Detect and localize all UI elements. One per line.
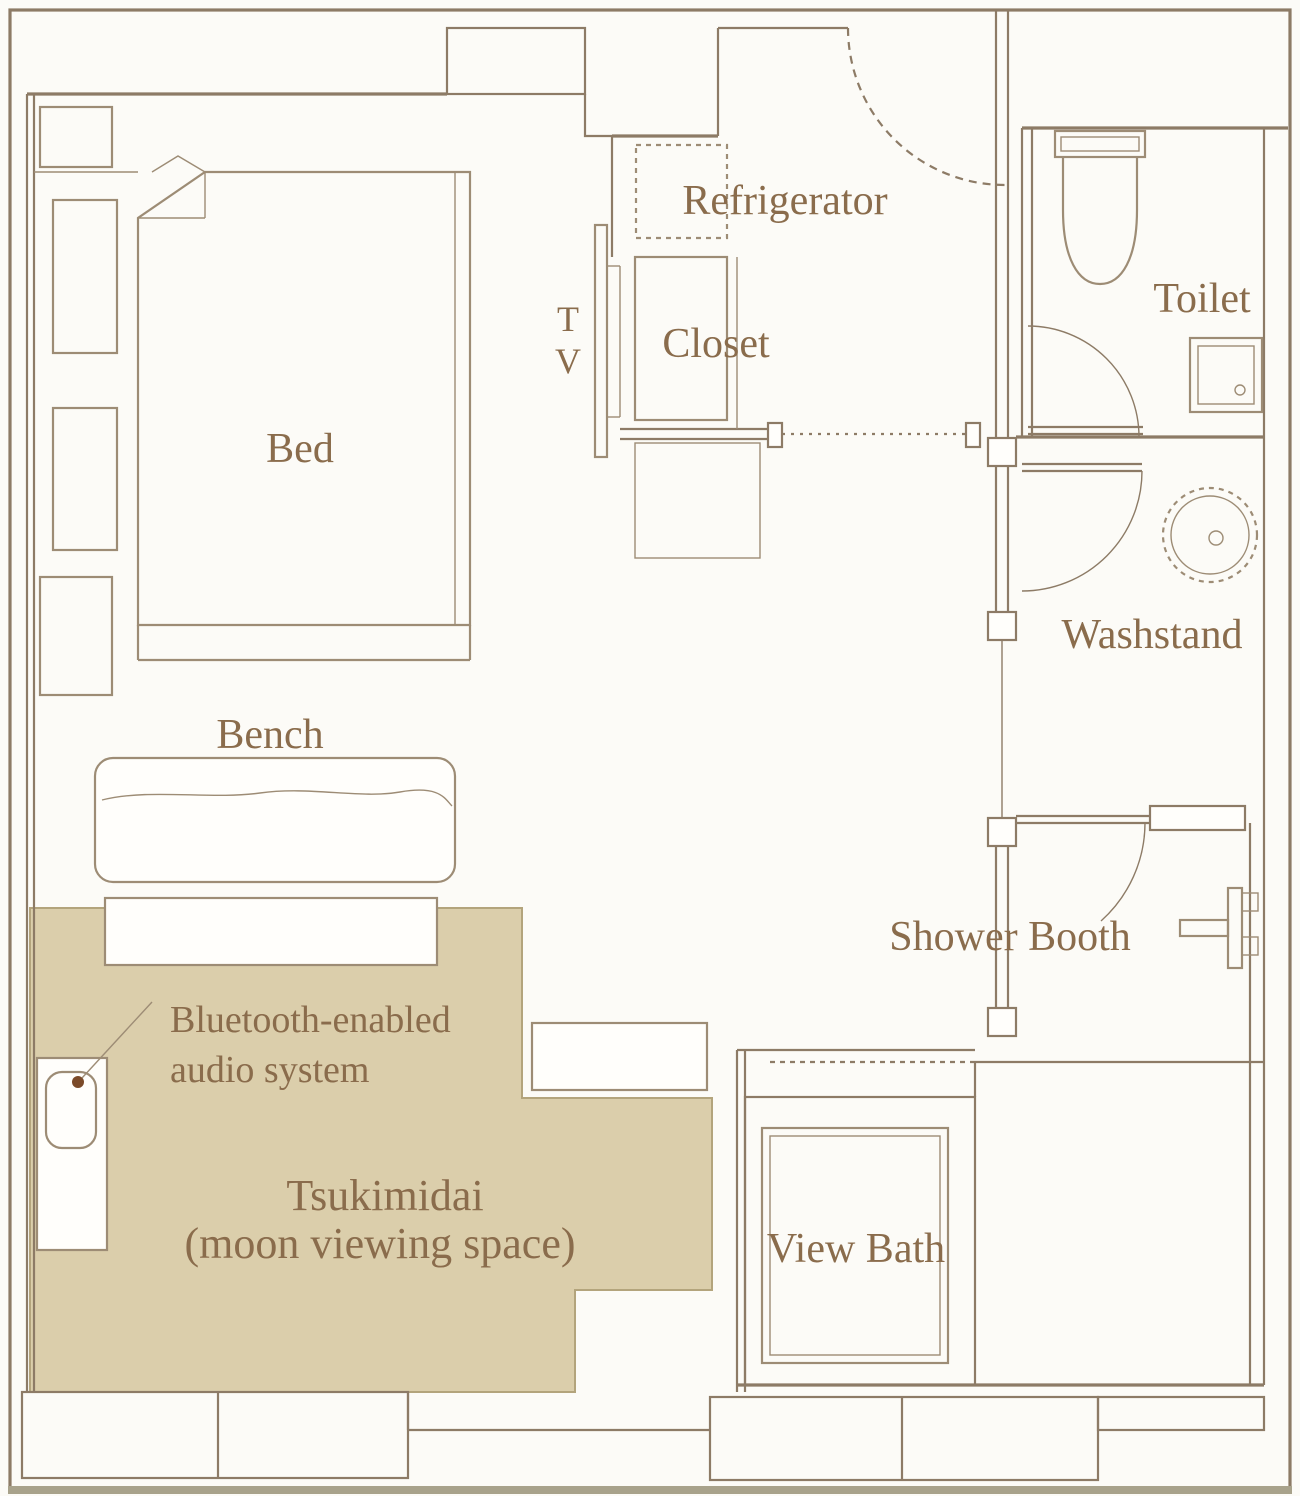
label-tv-line2: V: [555, 341, 581, 381]
label-bench: Bench: [216, 712, 323, 758]
bench: [95, 758, 455, 882]
wall-post: [988, 612, 1016, 640]
audio-speaker: [46, 1072, 96, 1148]
wall-post: [988, 818, 1016, 846]
label-bluetooth-line1: Bluetooth-enabled: [170, 999, 451, 1041]
bottom-trim: [8, 1486, 1292, 1494]
shower-door-lintel: [1150, 806, 1245, 830]
label-bed: Bed: [266, 426, 334, 472]
label-shower-booth: Shower Booth: [889, 914, 1131, 960]
label-tsukimidai-line2: (moon viewing space): [185, 1219, 576, 1268]
floor-plan-drawing: Bed Bench T V Refrigerator Closet Toilet…: [0, 0, 1300, 1496]
wall-post: [988, 438, 1016, 466]
label-view-bath: View Bath: [767, 1226, 945, 1272]
label-tv-line1: T: [557, 299, 579, 339]
label-toilet: Toilet: [1153, 276, 1251, 322]
floor-plan: Bed Bench T V Refrigerator Closet Toilet…: [0, 0, 1300, 1496]
label-washstand: Washstand: [1062, 612, 1243, 658]
track-end-cap: [966, 423, 980, 447]
label-tsukimidai-line1: Tsukimidai: [286, 1171, 483, 1220]
track-end-cap: [768, 423, 782, 447]
label-closet: Closet: [662, 321, 770, 367]
ledge: [532, 1023, 707, 1090]
label-refrigerator: Refrigerator: [682, 178, 887, 224]
label-bluetooth-line2: audio system: [170, 1049, 369, 1091]
low-table: [105, 898, 437, 965]
wall-post: [988, 1008, 1016, 1036]
